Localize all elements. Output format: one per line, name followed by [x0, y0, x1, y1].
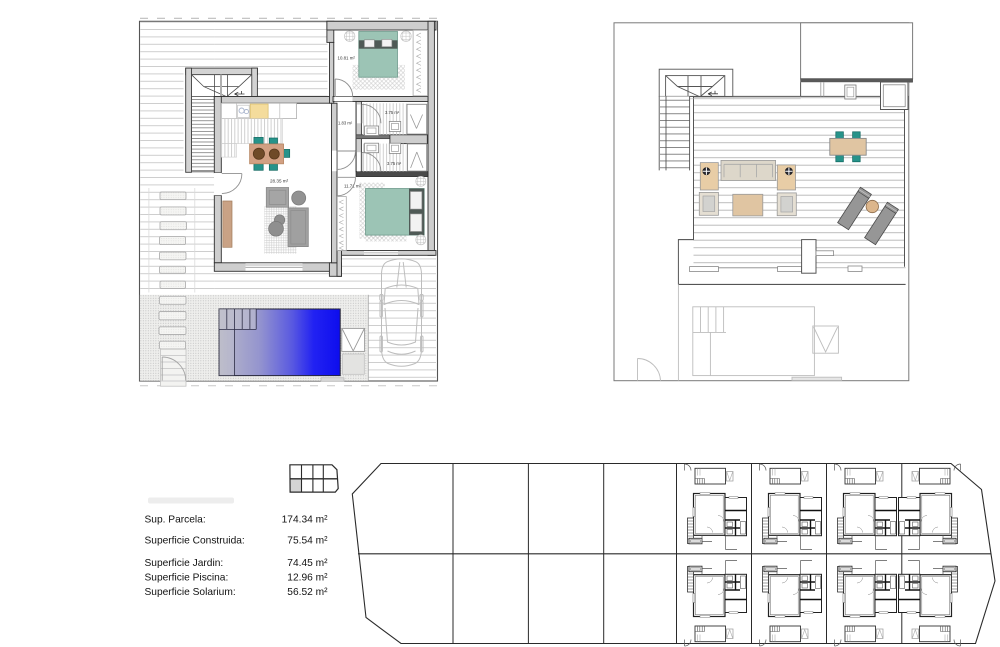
svg-text:28.35 m²: 28.35 m² — [270, 178, 289, 183]
svg-text:56.52 m²: 56.52 m² — [287, 587, 328, 598]
svg-text:10.81 m²: 10.81 m² — [338, 56, 356, 61]
svg-text:74.45 m²: 74.45 m² — [287, 558, 328, 569]
svg-text:Superficie Jardin:: Superficie Jardin: — [145, 558, 224, 569]
svg-text:Superficie Construida:: Superficie Construida: — [145, 536, 245, 547]
svg-text:1.83 m²: 1.83 m² — [338, 121, 353, 126]
svg-text:3.75 m²: 3.75 m² — [387, 161, 402, 166]
svg-text:Superficie Solarium:: Superficie Solarium: — [145, 587, 236, 598]
svg-text:12.96 m²: 12.96 m² — [287, 572, 328, 583]
svg-text:75.54 m²: 75.54 m² — [287, 536, 328, 547]
svg-text:Superficie Piscina:: Superficie Piscina: — [145, 572, 229, 583]
svg-text:3.75 m²: 3.75 m² — [385, 110, 400, 115]
svg-text:Sup. Parcela:: Sup. Parcela: — [145, 514, 206, 525]
svg-text:174.34 m²: 174.34 m² — [282, 514, 328, 525]
